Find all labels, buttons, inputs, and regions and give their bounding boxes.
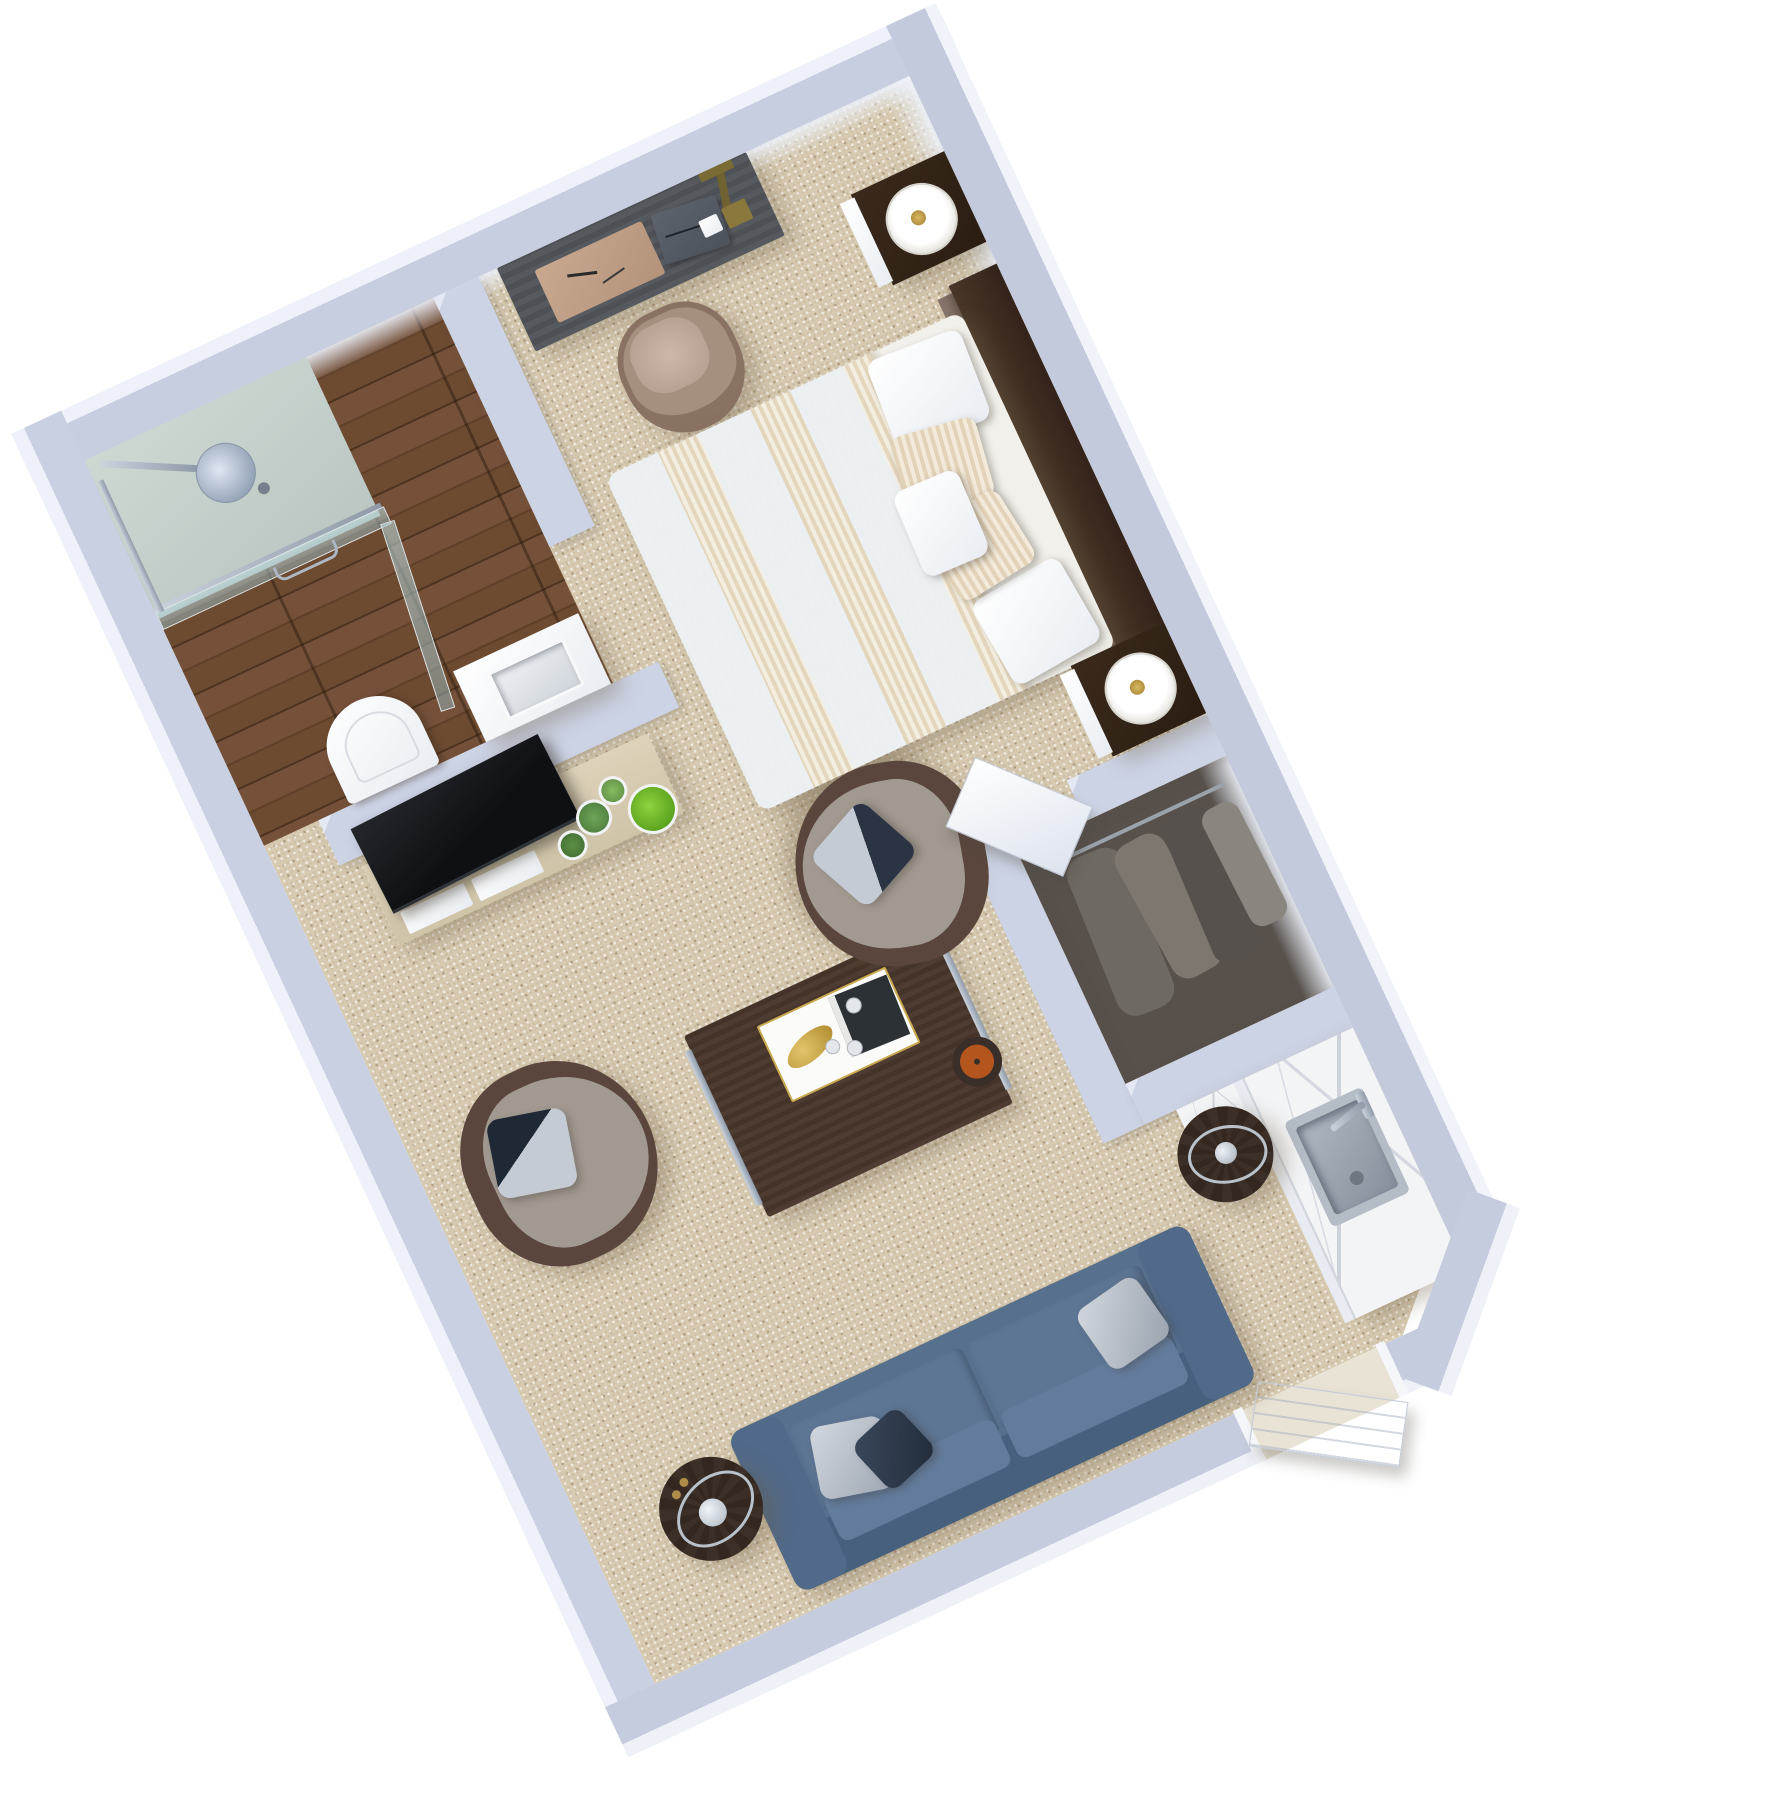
page: { "scene": { "title": "3D isometric floo…	[0, 0, 1792, 1800]
accent-pillow	[485, 1106, 579, 1200]
floor-plan	[11, 3, 1552, 1757]
